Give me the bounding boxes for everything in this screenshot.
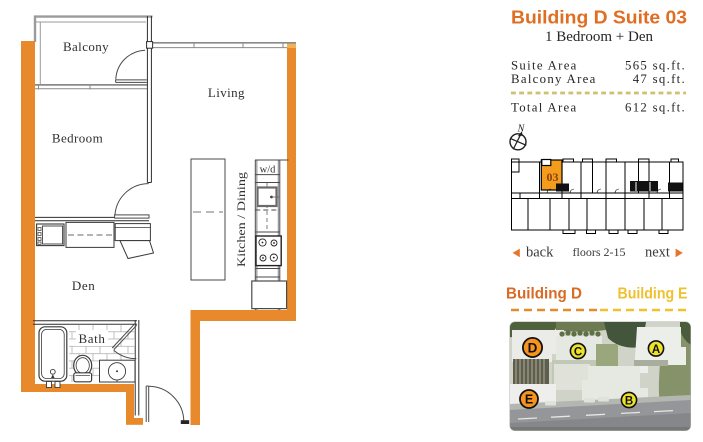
svg-text:Living: Living [208,85,245,100]
svg-text:Building D: Building D [506,286,582,303]
svg-text:A: A [652,344,660,356]
svg-text:Bedroom: Bedroom [52,131,103,146]
svg-text:47 sq.ft.: 47 sq.ft. [633,72,686,86]
svg-text:D: D [528,341,538,356]
svg-text:Balcony: Balcony [63,39,109,54]
svg-text:03: 03 [547,170,559,184]
svg-text:Building E: Building E [618,286,688,303]
svg-text:1 Bedroom + Den: 1 Bedroom + Den [545,29,654,45]
svg-text:Den: Den [72,278,95,293]
svg-text:Kitchen / Dining: Kitchen / Dining [236,172,248,267]
svg-text:w/d: w/d [260,165,277,176]
svg-text:E: E [525,393,533,407]
svg-text:Building D Suite 03: Building D Suite 03 [511,7,687,28]
svg-text:565 sq.ft.: 565 sq.ft. [625,59,686,73]
svg-text:floors 2-15: floors 2-15 [573,245,626,259]
svg-text:N: N [517,124,526,135]
svg-text:Suite Area: Suite Area [511,59,578,73]
svg-text:back: back [526,245,554,261]
svg-text:612 sq.ft.: 612 sq.ft. [625,101,686,115]
svg-text:Balcony Area: Balcony Area [511,72,597,86]
svg-text:Bath: Bath [79,331,106,346]
svg-text:next: next [645,245,670,261]
svg-text:C: C [574,346,582,358]
svg-text:B: B [625,395,633,407]
svg-text:Total Area: Total Area [511,101,577,115]
